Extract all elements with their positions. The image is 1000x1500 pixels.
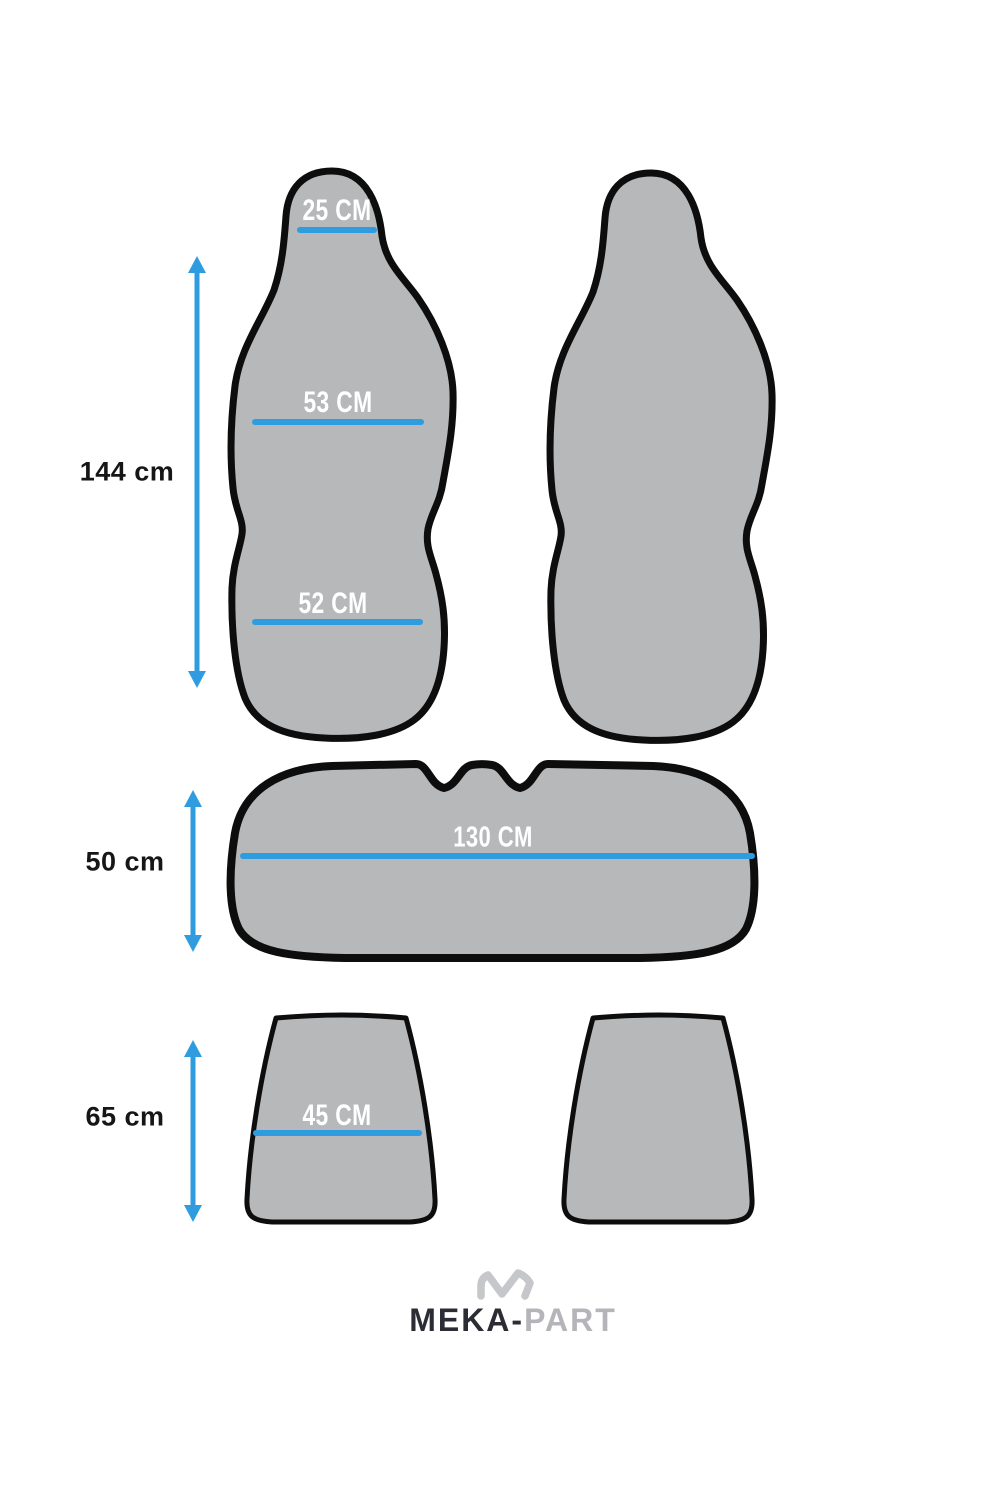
brand-wordmark: MEKA-PART <box>409 1304 617 1336</box>
front-seat-cover-right <box>546 168 776 748</box>
headrest-width-label: 25 CM <box>302 196 371 226</box>
double-headed-arrow-icon <box>180 1038 206 1224</box>
rear-backrest-cover-right <box>549 1011 767 1229</box>
front-seat-cover-left <box>227 166 457 746</box>
cushion-width-label: 52 CM <box>298 589 367 619</box>
bench-width-label: 130 CM <box>453 824 532 853</box>
headrest-width-line <box>297 227 377 233</box>
bench-width-line <box>240 853 755 859</box>
rear-width-line <box>253 1130 422 1136</box>
double-headed-arrow-icon <box>184 254 210 690</box>
bench-seat-cover <box>220 757 765 963</box>
rear-height-label: 65 cm <box>85 1104 164 1131</box>
bench-height-label: 50 cm <box>85 849 164 876</box>
backrest-width-label: 53 CM <box>303 388 372 418</box>
brand-name-secondary: PART <box>524 1302 617 1338</box>
double-headed-arrow-icon <box>180 788 206 954</box>
cushion-width-line <box>252 619 423 625</box>
rear-width-label: 45 CM <box>302 1101 371 1131</box>
front-seat-height-label: 144 cm <box>80 459 175 486</box>
brand-name-primary: MEKA- <box>409 1302 524 1338</box>
seat-cover-size-diagram: 25 CM 53 CM 52 CM 144 cm 130 CM 50 cm 45… <box>0 0 1000 1500</box>
mountain-zigzag-icon <box>473 1267 543 1301</box>
backrest-width-line <box>252 419 424 425</box>
